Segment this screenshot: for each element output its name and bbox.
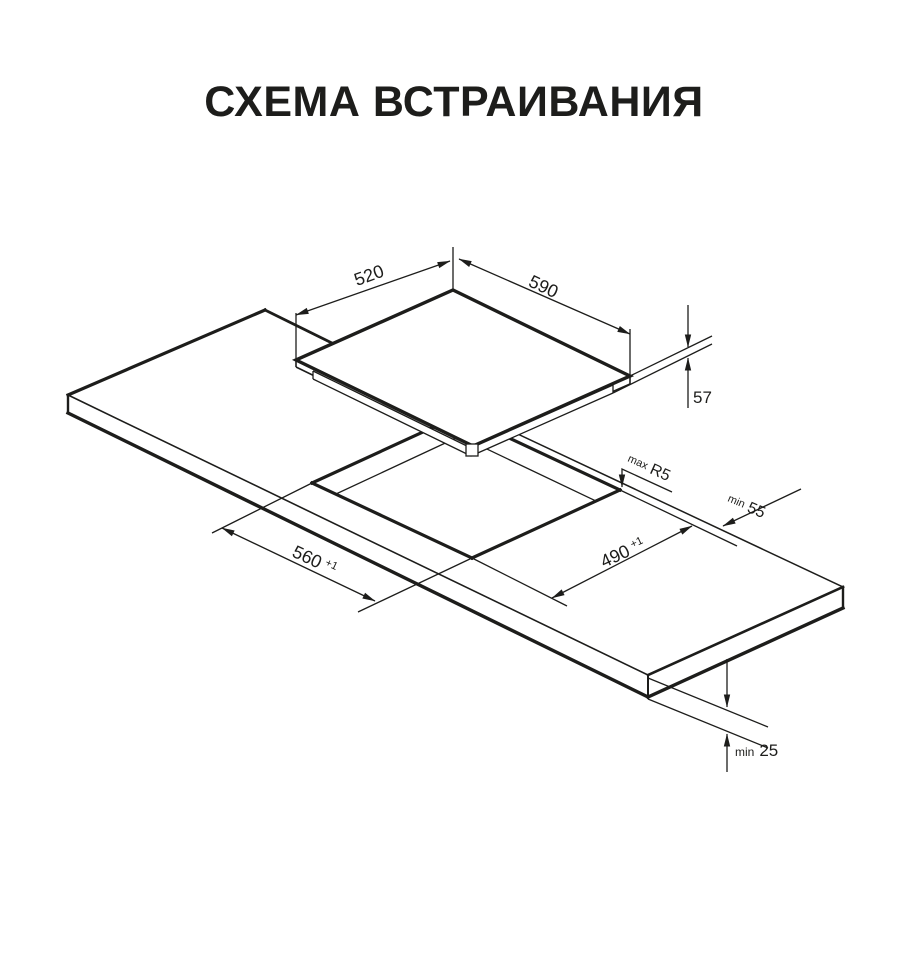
cutout-inner-wall-left bbox=[336, 438, 456, 494]
ext-line-490-left bbox=[472, 558, 567, 606]
countertop-right-end-edge bbox=[648, 587, 843, 675]
countertop-back-edge-right bbox=[505, 428, 843, 587]
ext-line-25-top bbox=[648, 678, 768, 727]
label-560: 560+1 bbox=[289, 541, 340, 579]
installation-diagram: 520 590 57 maxR5 min55 560+1 490+1 min25 bbox=[0, 0, 908, 960]
dim-line-560 bbox=[222, 528, 375, 601]
ext-line-57-bottom bbox=[613, 344, 712, 393]
hob-panel bbox=[296, 290, 630, 456]
countertop-right-bottom-edge bbox=[648, 608, 843, 697]
cutout-front-right-edge bbox=[472, 490, 620, 558]
hob-housing-corner-box bbox=[466, 444, 478, 456]
countertop-back-edge-left bbox=[265, 310, 340, 347]
countertop-front-bottom-edge bbox=[68, 413, 648, 697]
label-590: 590 bbox=[526, 271, 562, 302]
label-min-55: min55 bbox=[725, 491, 768, 522]
label-max-r5: maxR5 bbox=[625, 451, 673, 485]
countertop-back-left-end-edge bbox=[68, 310, 265, 395]
hob-glass-top bbox=[296, 290, 630, 446]
label-57: 57 bbox=[693, 388, 712, 407]
ext-line-57-top bbox=[630, 336, 712, 376]
countertop-front-top-edge bbox=[68, 395, 648, 675]
installation-scheme-page: СХЕМА ВСТРАИВАНИЯ bbox=[0, 0, 908, 960]
ext-line-25-bottom bbox=[648, 699, 768, 748]
